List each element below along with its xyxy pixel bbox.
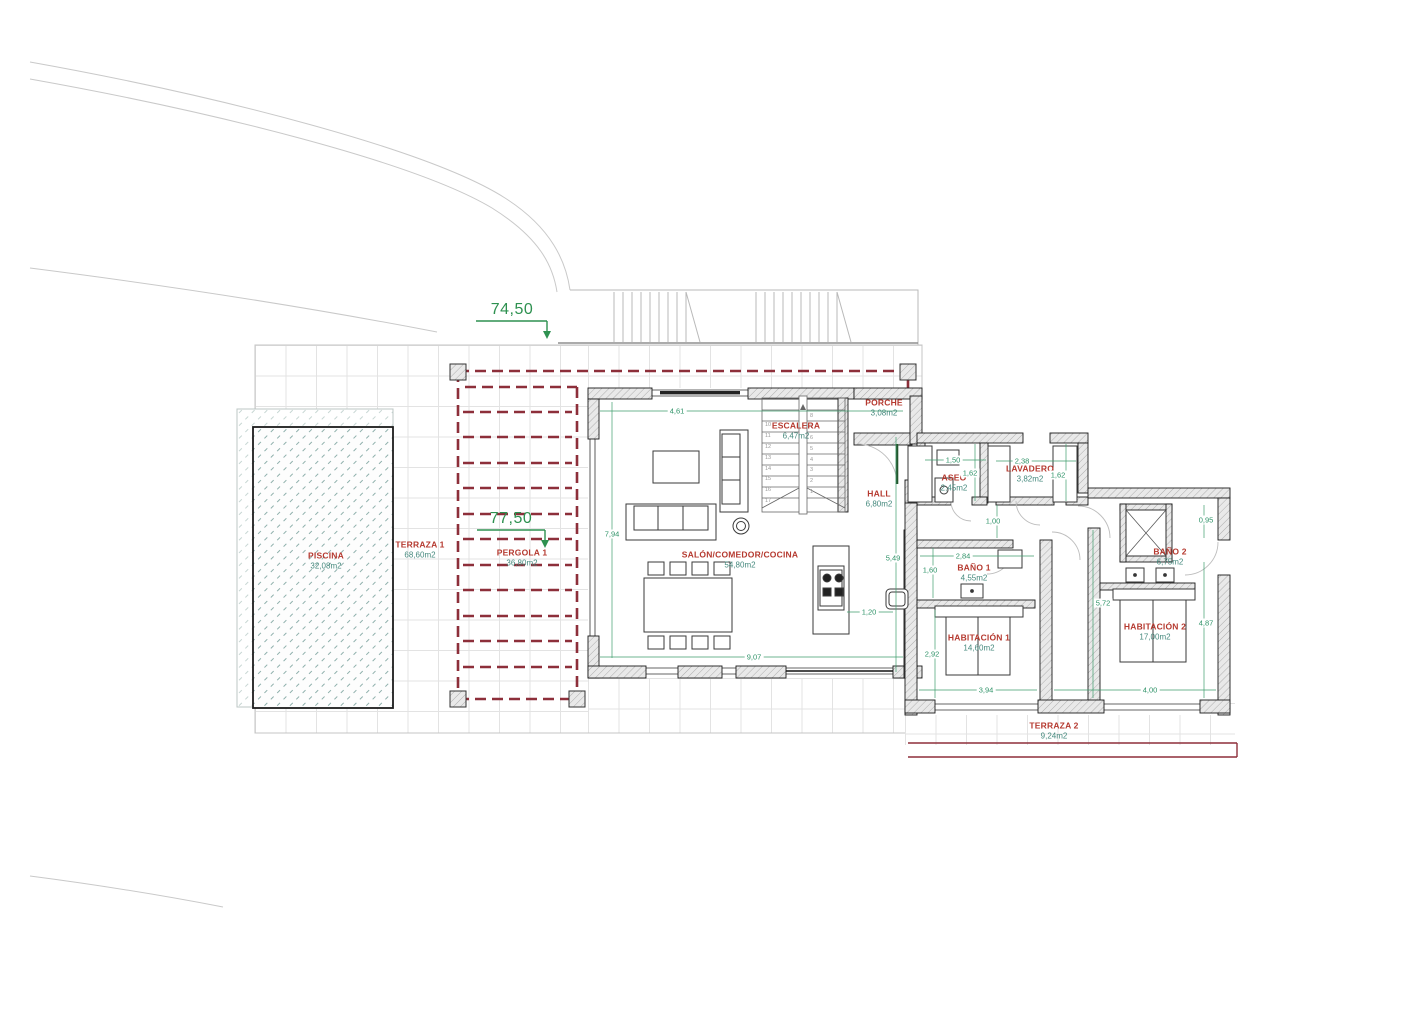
room-area: 2,45m2 [941, 483, 968, 493]
room-label-habitacion2: HABITACIÓN 2 17,00m2 [1124, 621, 1186, 642]
dim-salon-bottom: 9,07 [745, 653, 764, 662]
closet [908, 446, 932, 502]
room-name: ESCALERA [772, 420, 820, 431]
dim-aseo-w: 1,50 [944, 456, 963, 465]
terraza2-boundary [908, 743, 1237, 757]
room-label-pergola1: PERGOLA 1 36,80m2 [497, 547, 548, 568]
bed2-headboard [1113, 589, 1195, 600]
room-label-bano2: BAÑO 2 6,75m2 [1153, 546, 1186, 567]
room-area: 3,08m2 [865, 408, 903, 418]
coffee-table [653, 451, 699, 483]
dim-bano1-w: 2,84 [954, 552, 973, 561]
dim-salon-top: 4,61 [668, 407, 687, 416]
floor-plan-drawing [0, 0, 1426, 1010]
room-name: SALÓN/COMEDOR/COCINA [682, 549, 798, 560]
room-name: PORCHE [865, 397, 903, 408]
room-label-porche: PORCHE 3,08m2 [865, 397, 903, 418]
room-area: 68,60m2 [395, 550, 444, 560]
room-name: PERGOLA 1 [497, 547, 548, 558]
bed1-headboard [935, 606, 1023, 617]
room-area: 32,08m2 [308, 561, 344, 571]
room-label-piscina: PISCINA 32,08m2 [308, 550, 344, 571]
dim-aseo-h: 1,62 [961, 469, 980, 478]
room-name: HABITACIÓN 1 [948, 632, 1010, 643]
room-area: 4,55m2 [957, 573, 990, 583]
dim-lavadero-h: 1,62 [1049, 471, 1068, 480]
dim-hab2-right: 4,87 [1197, 619, 1216, 628]
room-area: 54,80m2 [682, 560, 798, 570]
room-name: BAÑO 1 [957, 562, 990, 573]
dim-kitchen-island: 1,20 [860, 608, 879, 617]
dim-bano2-top: 0,95 [1197, 516, 1216, 525]
floor-plan-canvas: 74,50 77,50 PISCINA 32,08m2 TERRAZA 1 68… [0, 0, 1426, 1010]
dim-bano1-h: 1,60 [921, 566, 940, 575]
room-name: BAÑO 2 [1153, 546, 1186, 557]
room-label-salon: SALÓN/COMEDOR/COCINA 54,80m2 [682, 549, 798, 570]
dim-salon-left: 7,94 [603, 530, 622, 539]
dim-hab1-w: 3,94 [977, 686, 996, 695]
room-label-terraza2: TERRAZA 2 9,24m2 [1029, 720, 1078, 741]
room-label-terraza1: TERRAZA 1 68,60m2 [395, 539, 444, 560]
room-name: HABITACIÓN 2 [1124, 621, 1186, 632]
dim-hab1-h: 2,92 [923, 650, 942, 659]
room-area: 3,82m2 [1006, 474, 1054, 484]
room-label-lavadero: LAVADERO 3,82m2 [1006, 463, 1054, 484]
room-area: 6,80m2 [866, 499, 893, 509]
dim-hall-corridor: 1,00 [984, 517, 1003, 526]
level-marker-lower: 77,50 [490, 510, 533, 528]
exterior-stairs [558, 290, 918, 345]
stair-numbers-left: 1011 1213 1415 1617 [765, 423, 771, 510]
room-name: PISCINA [308, 550, 344, 561]
room-area: 6,75m2 [1153, 557, 1186, 567]
level-marker-upper: 74,50 [491, 301, 534, 319]
dim-lavadero-w: 2,38 [1013, 457, 1032, 466]
bath1-fixture [998, 550, 1022, 568]
room-area: 17,00m2 [1124, 632, 1186, 642]
room-name: TERRAZA 2 [1029, 720, 1078, 731]
room-label-habitacion1: HABITACIÓN 1 14,60m2 [948, 632, 1010, 653]
room-area: 14,60m2 [948, 643, 1010, 653]
dim-corridor-v: 5,72 [1094, 599, 1113, 608]
room-name: HALL [866, 488, 893, 499]
dim-hab2-w: 4,00 [1141, 686, 1160, 695]
dim-salon-right: 5,49 [884, 554, 903, 563]
room-area: 36,80m2 [497, 558, 548, 568]
dining-table [644, 578, 732, 632]
room-name: TERRAZA 1 [395, 539, 444, 550]
room-area: 9,24m2 [1029, 731, 1078, 741]
room-area: 6,47m2 [772, 431, 820, 441]
room-label-escalera: ESCALERA 6,47m2 [772, 420, 820, 441]
room-label-hall: HALL 6,80m2 [866, 488, 893, 509]
room-label-bano1: BAÑO 1 4,55m2 [957, 562, 990, 583]
